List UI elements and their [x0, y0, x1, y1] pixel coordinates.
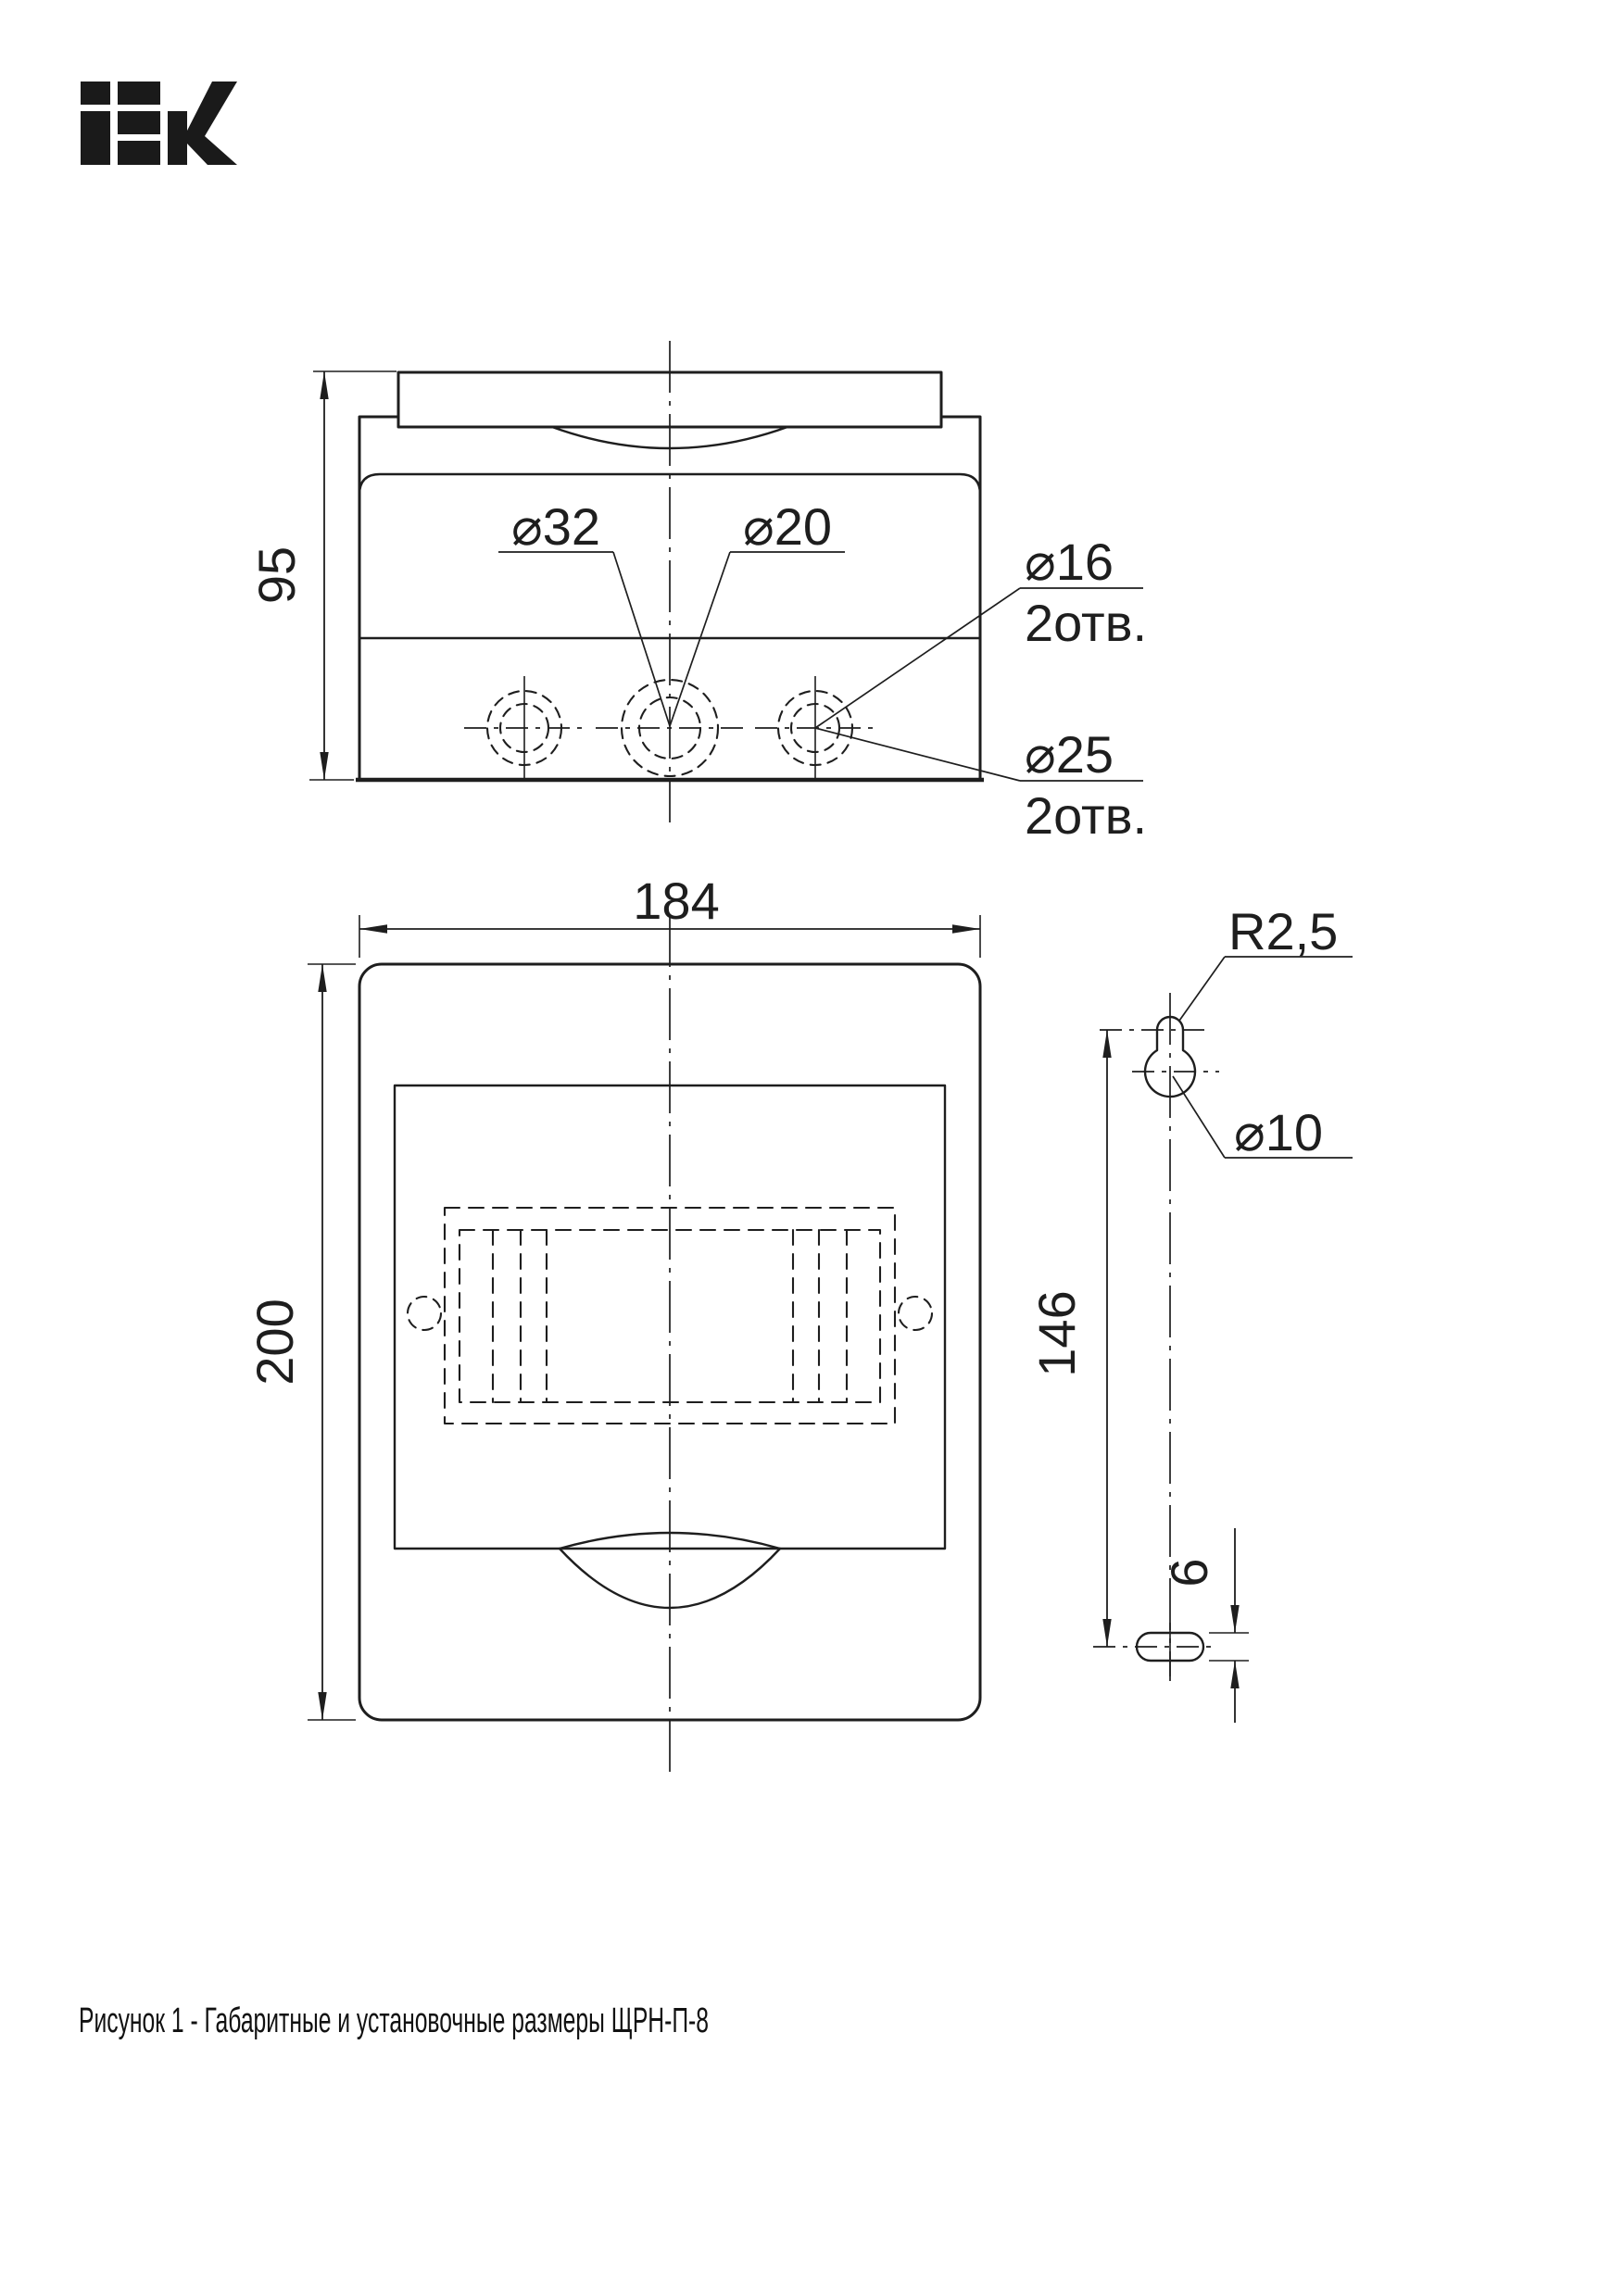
- screw-hole-right: [899, 1297, 932, 1330]
- logo-e-bar-bottom: [118, 141, 160, 165]
- label-d25-leader: [815, 728, 1020, 781]
- screw-hole-left: [408, 1297, 441, 1330]
- dim-184-label: 184: [633, 872, 719, 930]
- label-d10: ⌀10: [1173, 1076, 1353, 1161]
- logo-i-dot: [81, 82, 110, 105]
- label-d20-text: ⌀20: [743, 497, 832, 556]
- label-d10-text: ⌀10: [1234, 1103, 1323, 1161]
- mounting-hole-detail: R2,5 ⌀10 146 6: [1027, 902, 1353, 1723]
- label-d16-text: ⌀16: [1025, 533, 1114, 591]
- logo-e-bar-top: [118, 82, 160, 105]
- label-d25-qty: 2отв.: [1025, 786, 1147, 845]
- logo-k: [168, 82, 237, 165]
- label-d10-leader: [1173, 1076, 1225, 1158]
- dim-200-label: 200: [245, 1299, 304, 1385]
- body-top-left-step: [359, 417, 398, 474]
- label-d32-text: ⌀32: [511, 497, 600, 556]
- top-view: 95 ⌀32 ⌀20 ⌀16 2отв. ⌀25 2отв.: [247, 341, 1147, 845]
- label-d16-leader: [815, 588, 1020, 728]
- logo-i-stem: [81, 111, 110, 165]
- dim-146: 146: [1027, 1030, 1107, 1647]
- label-d25-text: ⌀25: [1025, 725, 1114, 784]
- label-r25-text: R2,5: [1228, 902, 1338, 960]
- label-d16-qty: 2отв.: [1025, 594, 1147, 652]
- knockout-left: [464, 676, 585, 778]
- front-view: 184 200: [245, 872, 980, 1780]
- technical-drawing: 95 ⌀32 ⌀20 ⌀16 2отв. ⌀25 2отв.: [0, 0, 1624, 2296]
- dim-200: 200: [245, 964, 356, 1720]
- label-r25-leader: [1179, 957, 1225, 1021]
- dim-6: 6: [1160, 1528, 1249, 1723]
- label-r25: R2,5: [1179, 902, 1353, 1021]
- mounting-slot: [1093, 1623, 1215, 1676]
- figure-caption: Рисунок 1 - Габаритные и установочные ра…: [79, 2001, 709, 2040]
- dim-95: 95: [247, 371, 397, 780]
- drawing-page: 95 ⌀32 ⌀20 ⌀16 2отв. ⌀25 2отв.: [0, 0, 1624, 2296]
- body-top-right-step: [941, 417, 980, 474]
- dim-95-label: 95: [247, 546, 306, 604]
- dim-146-label: 146: [1027, 1290, 1086, 1376]
- iek-logo: [81, 82, 237, 165]
- logo-e-bar-mid: [118, 111, 160, 134]
- dim-6-label: 6: [1160, 1558, 1218, 1587]
